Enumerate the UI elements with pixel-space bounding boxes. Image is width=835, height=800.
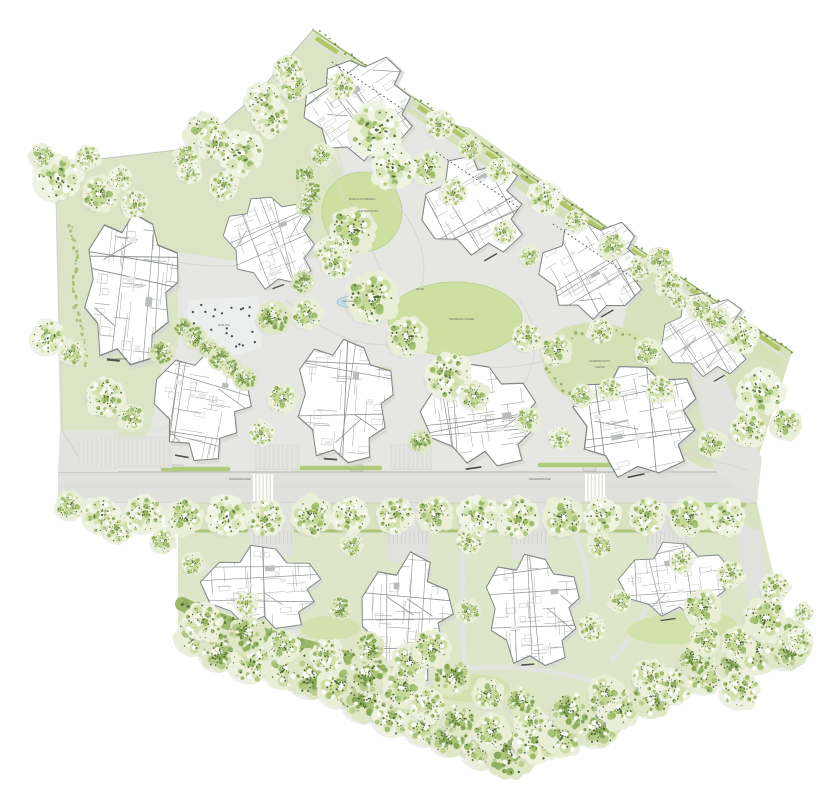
svg-text:SPIELPLATZ BRODEL: SPIELPLATZ BRODEL <box>349 197 376 201</box>
svg-text:GARTENHOF: GARTENHOF <box>113 358 128 361</box>
svg-text:SPIELHOF: SPIELHOF <box>218 324 230 327</box>
svg-text:KLETTERGARTEN: KLETTERGARTEN <box>358 210 379 213</box>
svg-text:BRUDERSTRASSE: BRUDERSTRASSE <box>229 478 251 481</box>
svg-text:GEMEINSCHAFTS-: GEMEINSCHAFTS- <box>589 360 611 363</box>
svg-text:BAUMDACH ANGER: BAUMDACH ANGER <box>450 317 475 321</box>
svg-text:WASSERSPIEL: WASSERSPIEL <box>342 300 358 303</box>
svg-text:ANGER: ANGER <box>416 288 425 291</box>
svg-text:GARTEN: GARTEN <box>595 366 605 369</box>
svg-text:KINDERHAUS: KINDERHAUS <box>151 234 154 250</box>
svg-text:BRUDERSTRASSE: BRUDERSTRASSE <box>529 478 551 481</box>
